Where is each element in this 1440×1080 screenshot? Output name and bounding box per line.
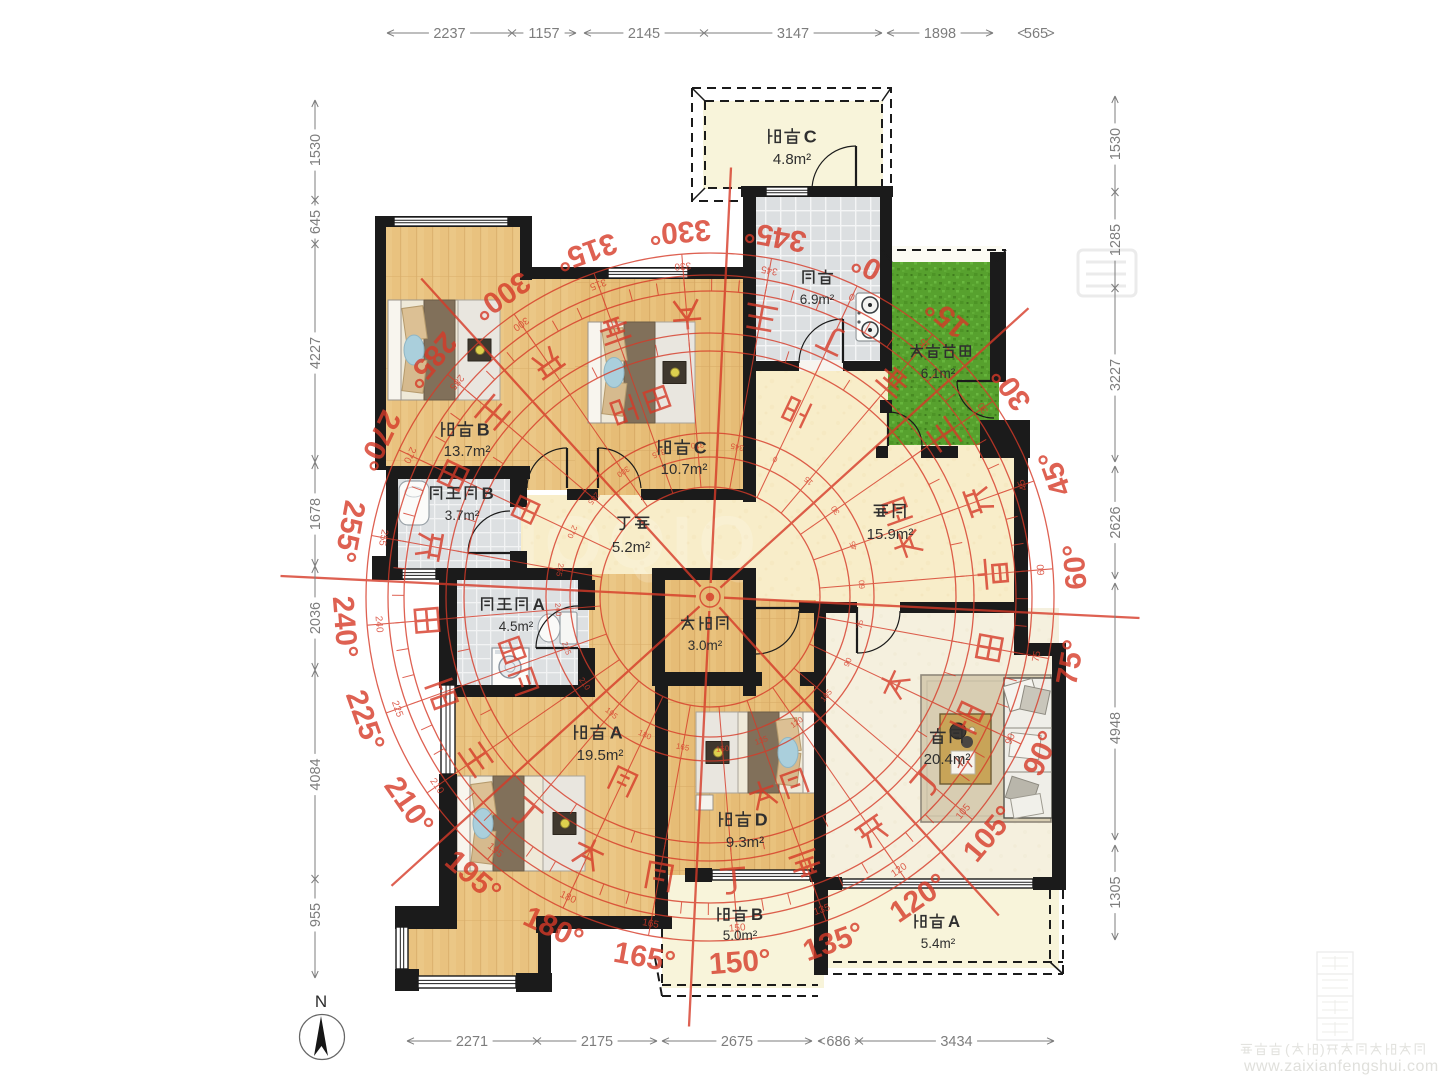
svg-text:2237: 2237 (433, 26, 465, 42)
svg-text:10.7m²: 10.7m² (661, 461, 708, 478)
svg-text:2675: 2675 (721, 1034, 753, 1050)
svg-text:): ) (1320, 1041, 1325, 1057)
svg-text:C: C (804, 127, 817, 147)
svg-text:5.0m²: 5.0m² (723, 928, 758, 943)
svg-text:955: 955 (308, 903, 324, 927)
svg-text:2145: 2145 (628, 26, 660, 42)
svg-text:2036: 2036 (308, 602, 324, 634)
svg-text:3.0m²: 3.0m² (688, 638, 723, 653)
svg-text:240°: 240° (326, 595, 364, 660)
svg-text:686: 686 (826, 1034, 850, 1050)
svg-text:2626: 2626 (1108, 506, 1124, 538)
svg-text:1157: 1157 (528, 26, 559, 42)
svg-text:240: 240 (372, 615, 384, 633)
svg-text:1678: 1678 (308, 498, 324, 530)
svg-text:20.4m²: 20.4m² (924, 751, 971, 768)
svg-text:6.1m²: 6.1m² (921, 366, 956, 381)
svg-text:5.4m²: 5.4m² (921, 936, 956, 951)
svg-text:D: D (755, 810, 768, 830)
svg-text:330: 330 (674, 259, 692, 271)
svg-text:565: 565 (1024, 26, 1048, 42)
svg-text:60: 60 (857, 579, 867, 589)
svg-text:4.8m²: 4.8m² (773, 151, 811, 168)
svg-text:www.zaixianfengshui.com: www.zaixianfengshui.com (1243, 1058, 1439, 1075)
svg-text:3.7m²: 3.7m² (445, 508, 480, 523)
svg-text:1305: 1305 (1108, 876, 1124, 908)
svg-text:1898: 1898 (924, 26, 956, 42)
svg-text:A: A (533, 595, 545, 614)
svg-text:4.5m²: 4.5m² (499, 619, 534, 634)
svg-text:9.3m²: 9.3m² (726, 834, 764, 851)
svg-text:19.5m²: 19.5m² (577, 747, 624, 764)
svg-text:4084: 4084 (308, 758, 324, 790)
svg-text:13.7m²: 13.7m² (444, 443, 491, 460)
svg-text:B: B (477, 420, 490, 440)
svg-text:N: N (315, 992, 327, 1011)
svg-text:645: 645 (308, 210, 324, 234)
svg-text:150°: 150° (708, 943, 773, 981)
svg-text:60°: 60° (1057, 543, 1094, 591)
svg-text:A: A (610, 723, 623, 743)
svg-text:4948: 4948 (1108, 712, 1124, 744)
svg-text:150: 150 (716, 744, 731, 754)
svg-text:330°: 330° (648, 213, 713, 251)
svg-text:3434: 3434 (940, 1034, 972, 1050)
svg-text:2175: 2175 (581, 1034, 613, 1050)
svg-text:60: 60 (1035, 563, 1047, 575)
svg-text:5.2m²: 5.2m² (612, 539, 650, 556)
svg-text:B: B (482, 484, 494, 503)
svg-text:B: B (751, 905, 763, 924)
svg-text:A: A (948, 912, 960, 931)
svg-text:(: ( (1285, 1041, 1290, 1057)
svg-text:240: 240 (553, 603, 563, 618)
svg-text:15.9m²: 15.9m² (867, 526, 914, 543)
svg-text:1530: 1530 (308, 134, 324, 166)
svg-text:2271: 2271 (456, 1034, 488, 1050)
svg-text:4227: 4227 (308, 337, 324, 369)
svg-text:C: C (694, 438, 707, 458)
svg-text:6.9m²: 6.9m² (800, 292, 835, 307)
svg-text:1530: 1530 (1108, 128, 1124, 160)
svg-text:3147: 3147 (777, 26, 809, 42)
svg-text:3227: 3227 (1108, 359, 1124, 391)
